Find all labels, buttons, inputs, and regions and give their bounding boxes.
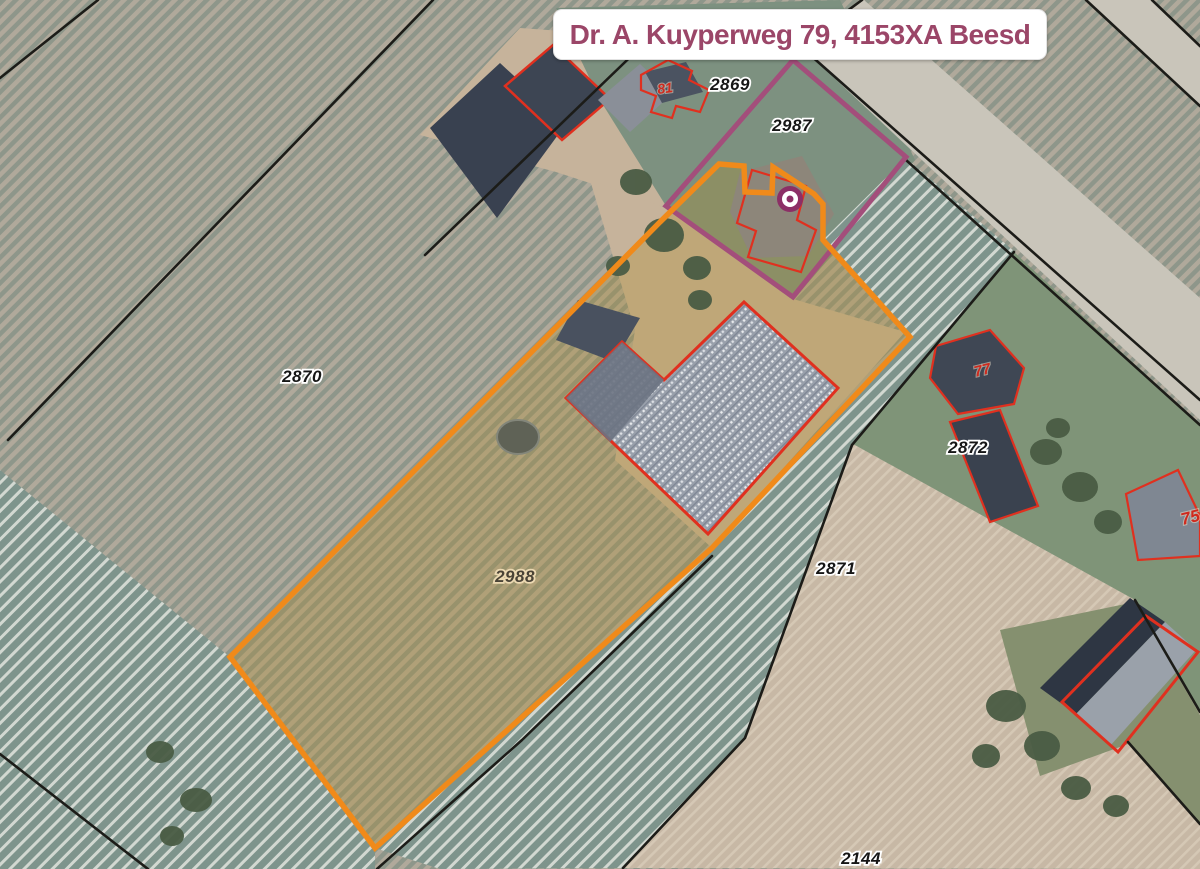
parcel-label-2869: 2869 <box>709 75 750 94</box>
parcel-label-2871: 2871 <box>815 559 856 578</box>
map-viewport: 2869 2987 2870 2872 2988 2871 2144 81 77… <box>0 0 1200 869</box>
aerial-map[interactable]: 2869 2987 2870 2872 2988 2871 2144 81 77… <box>0 0 1200 869</box>
parcel-label-2144: 2144 <box>840 849 881 868</box>
parcel-label-2988: 2988 <box>494 567 535 586</box>
pond <box>497 420 539 454</box>
house-number-81: 81 <box>656 79 674 97</box>
parcel-label-2870: 2870 <box>281 367 322 386</box>
house-number-75: 75 <box>1179 506 1200 529</box>
parcel-label-2987: 2987 <box>771 116 813 135</box>
parcel-label-2872: 2872 <box>947 438 988 457</box>
address-marker[interactable] <box>777 186 803 212</box>
address-banner: Dr. A. Kuyperweg 79, 4153XA Beesd <box>553 9 1047 60</box>
